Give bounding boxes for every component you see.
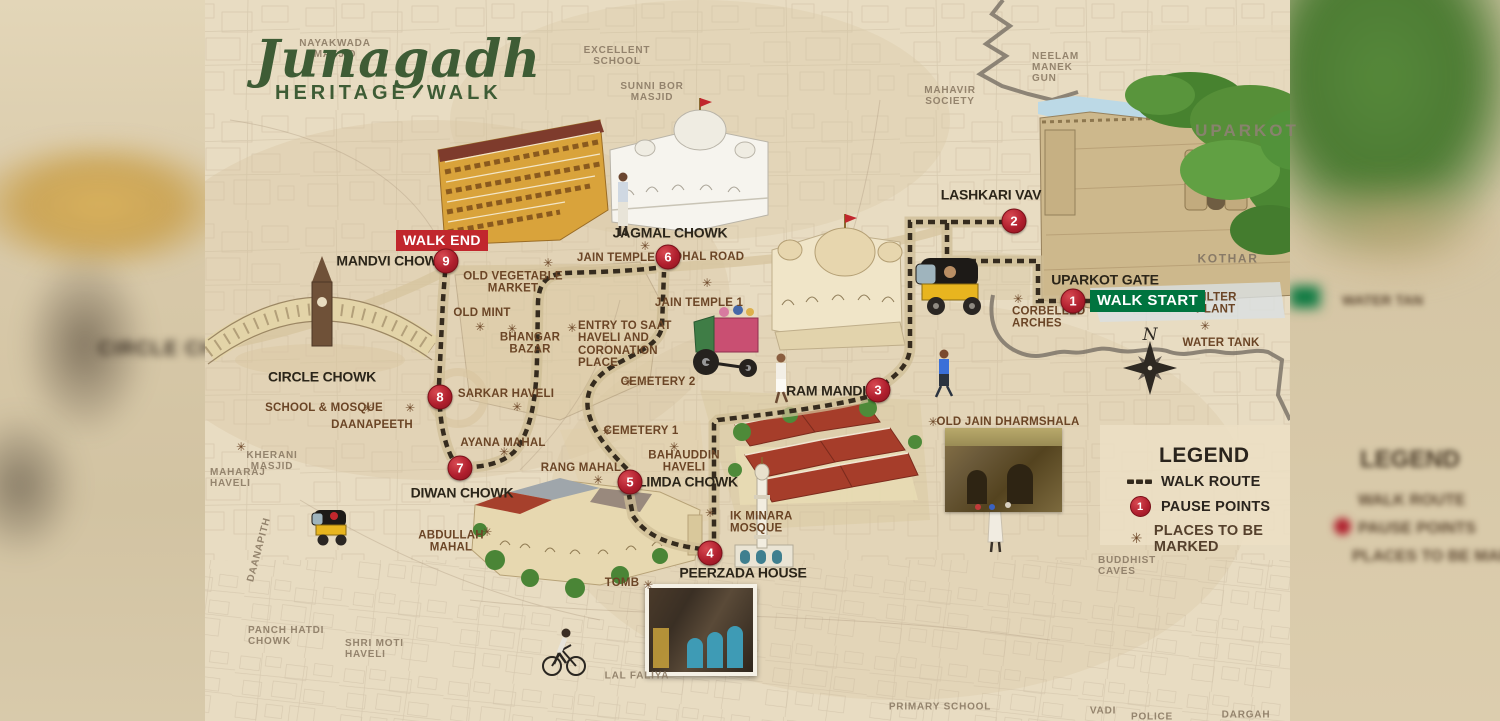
heritage-walk-map: N	[205, 0, 1290, 721]
logo-subtitle-heritage: HERITAGE	[275, 82, 409, 105]
old-jain-dharmshala-photo	[945, 428, 1062, 512]
legend: LEGEND WALK ROUTE 1 PAUSE POINTS ✳ PLACE…	[1125, 444, 1290, 561]
junagadh-heritage-walk-logo: Junagadh HERITAGE WALK	[255, 34, 541, 105]
legend-pause-points-label: PAUSE POINTS	[1161, 499, 1270, 515]
walk-route-symbol	[1125, 480, 1155, 484]
logo-script-text: Junagadh	[255, 34, 541, 86]
logo-subtitle: HERITAGE WALK	[255, 82, 541, 105]
legend-row-pause-points: 1 PAUSE POINTS	[1125, 496, 1290, 517]
uparkot-fort-illustration	[1038, 72, 1335, 322]
logo-subtitle-walk: WALK	[427, 82, 502, 105]
peerzada-house-photo	[645, 584, 757, 676]
legend-places-label: PLACES TO BE MARKED	[1154, 523, 1290, 555]
legend-row-places-marked: ✳ PLACES TO BE MARKED	[1125, 523, 1290, 555]
star-symbol: ✳	[1125, 531, 1148, 547]
pause-point-symbol: 1	[1130, 496, 1151, 517]
compass-north-letter: N	[1142, 325, 1159, 345]
legend-row-walk-route: WALK ROUTE	[1125, 474, 1290, 490]
junagadh-heritage-walk-poster: { "title": { "script": "Junagadh", "subt…	[0, 0, 1500, 721]
legend-title: LEGEND	[1159, 444, 1290, 468]
legend-walk-route-label: WALK ROUTE	[1161, 474, 1260, 490]
